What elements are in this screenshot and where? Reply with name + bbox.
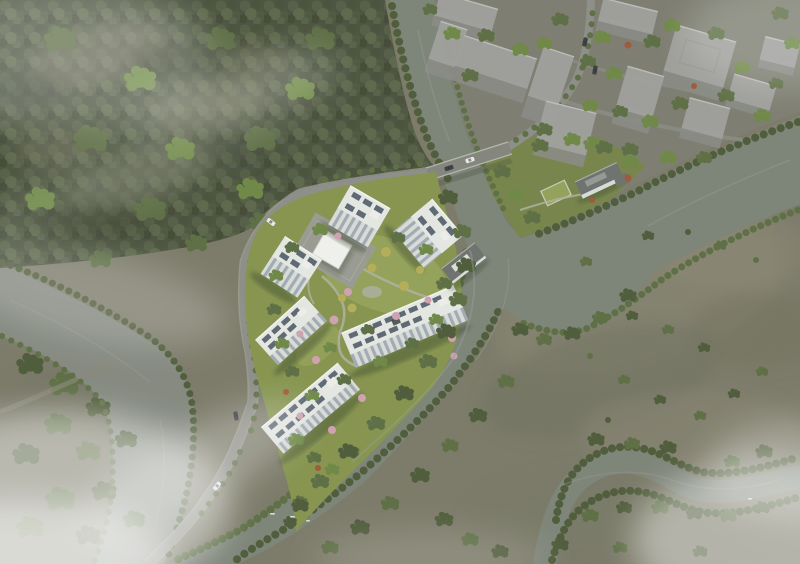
aerial-rendering-stage: [0, 0, 800, 564]
tone-wash: [0, 0, 800, 564]
masterplan-scene: [0, 0, 800, 564]
